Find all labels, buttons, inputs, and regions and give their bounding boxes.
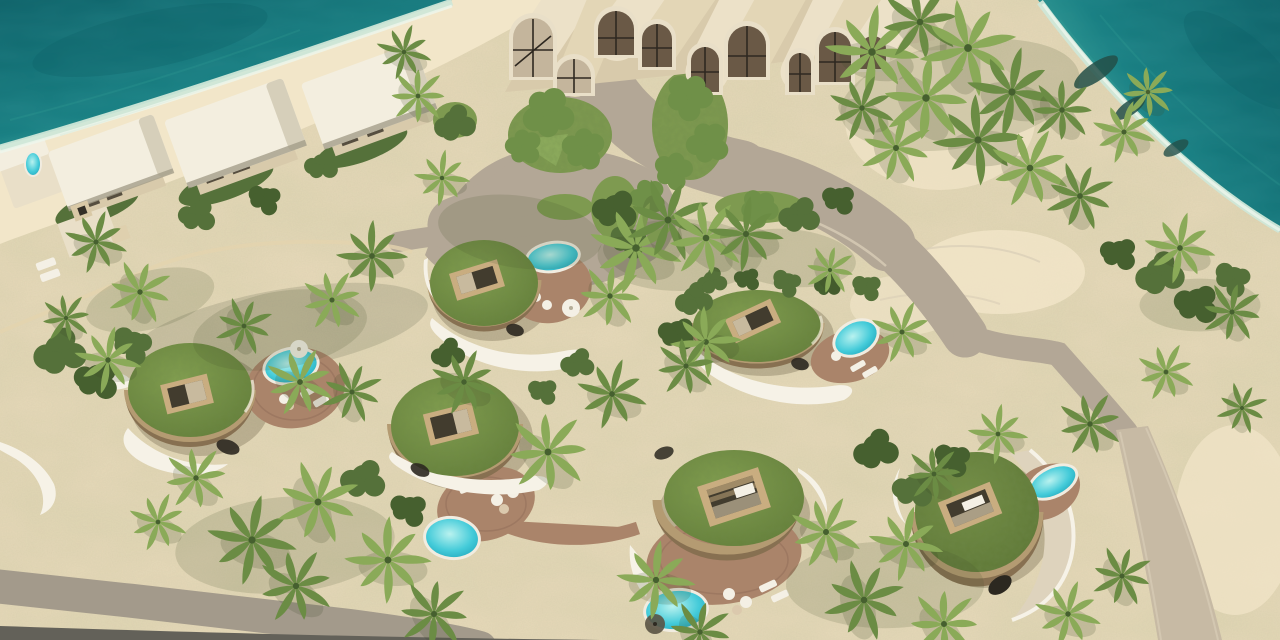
round-chair	[491, 494, 503, 506]
round-chair	[723, 588, 735, 600]
resort-aerial-render	[0, 0, 1280, 640]
round-chair	[499, 504, 509, 514]
parasol-pole	[569, 306, 573, 310]
parasol-pole	[653, 622, 657, 626]
resort-scene	[0, 0, 1280, 640]
round-chair	[740, 596, 752, 608]
round-chair	[831, 351, 841, 361]
round-chair	[732, 605, 742, 615]
round-chair	[542, 300, 552, 310]
cabana-pool	[26, 153, 40, 175]
